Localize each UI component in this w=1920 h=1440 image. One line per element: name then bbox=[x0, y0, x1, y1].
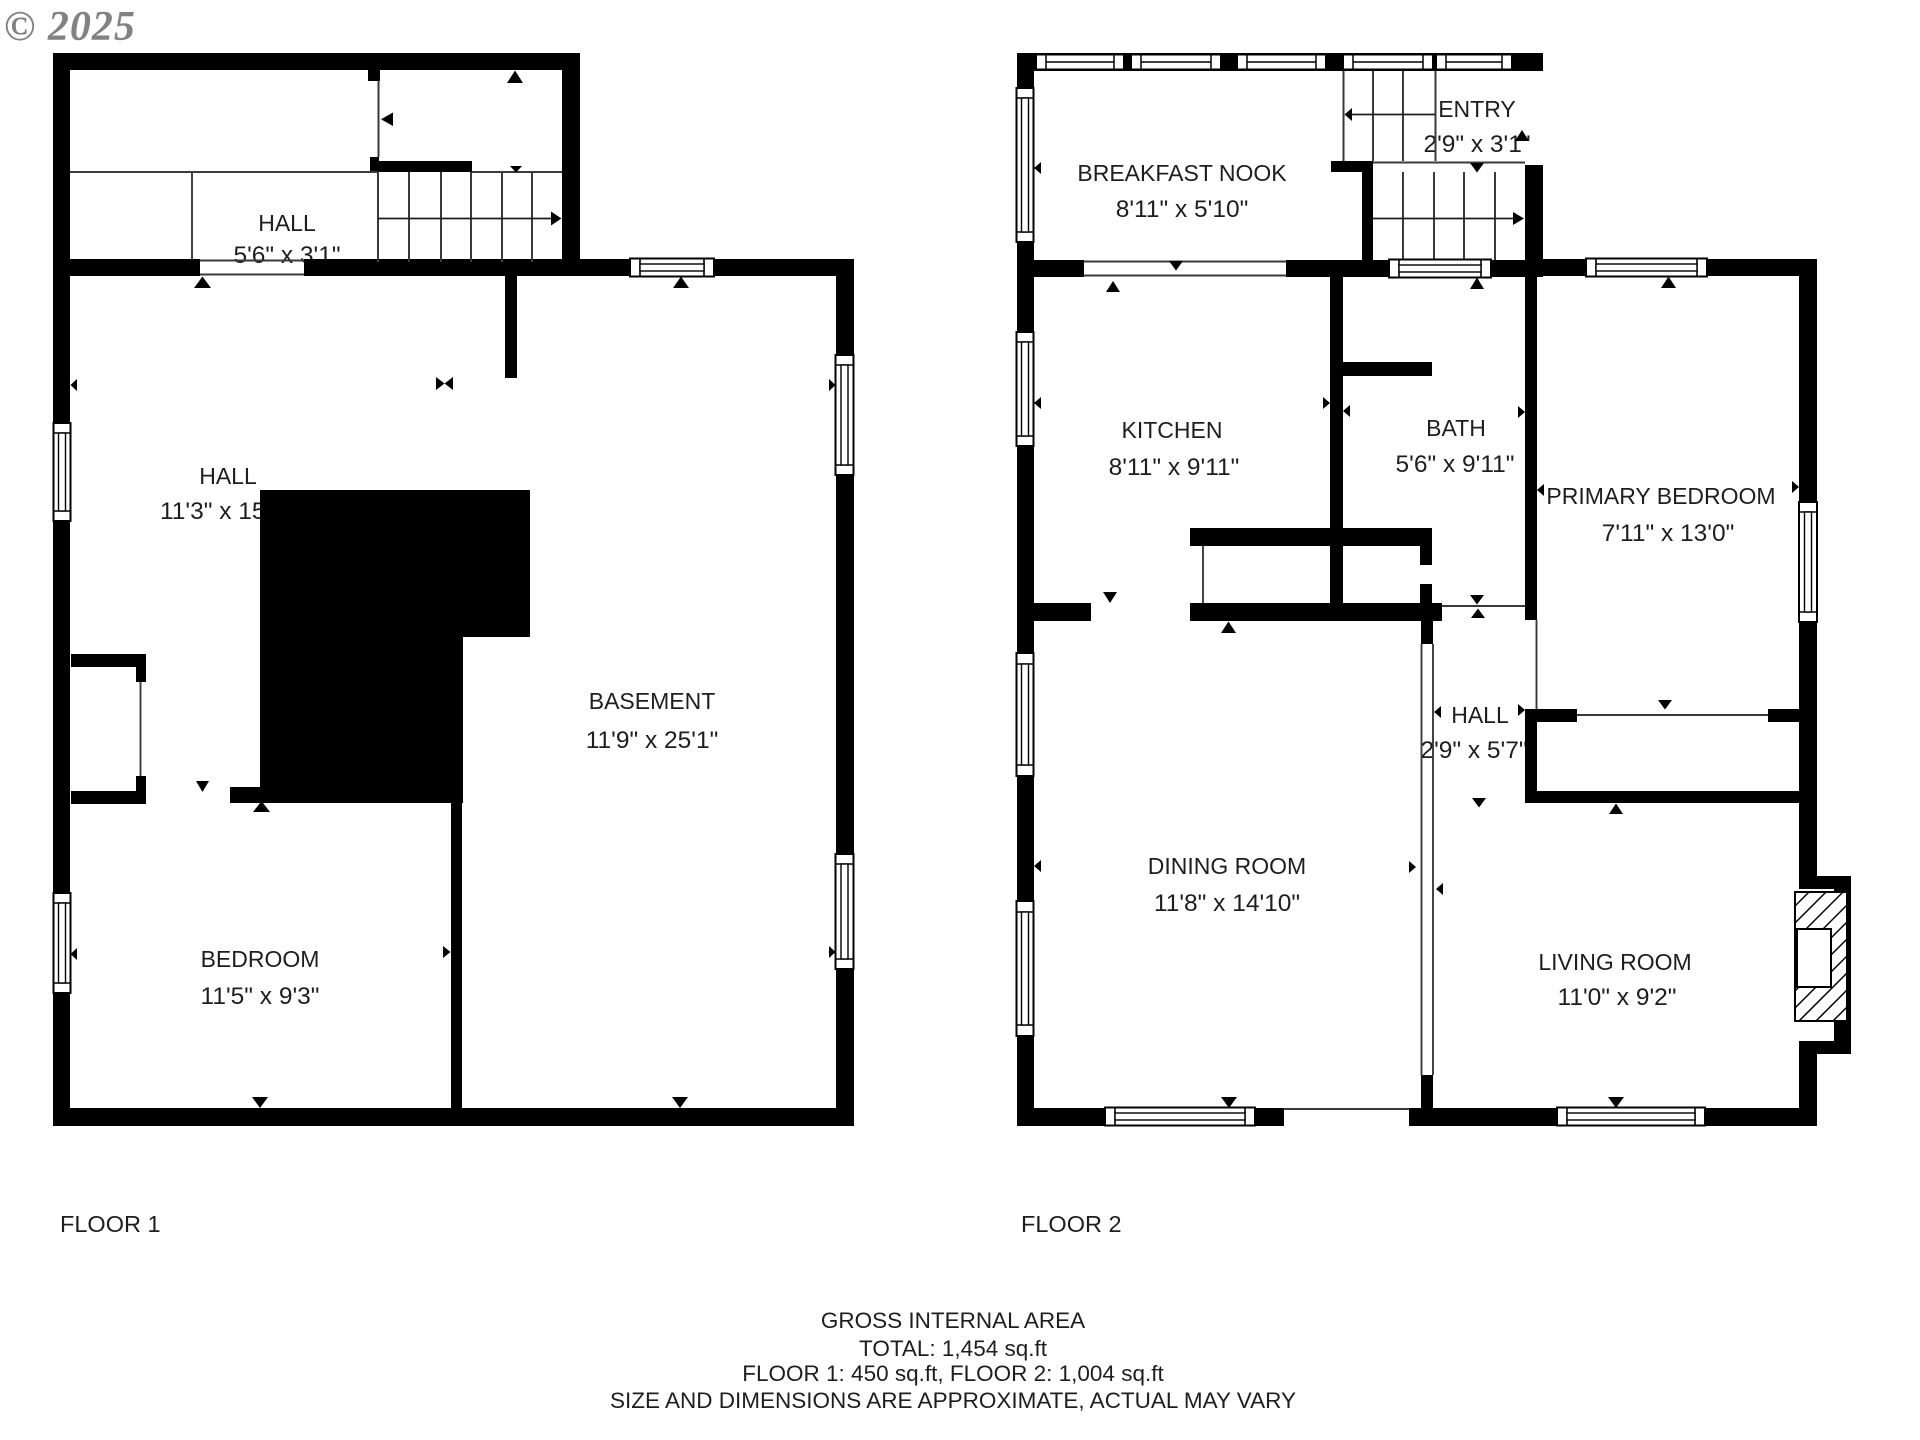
svg-text:7'11" x 13'0": 7'11" x 13'0" bbox=[1602, 520, 1735, 547]
svg-text:PRIMARY BEDROOM: PRIMARY BEDROOM bbox=[1546, 483, 1775, 509]
svg-text:8'11" x 9'11": 8'11" x 9'11" bbox=[1109, 454, 1240, 481]
svg-text:SIZE AND DIMENSIONS ARE APPROX: SIZE AND DIMENSIONS ARE APPROXIMATE, ACT… bbox=[610, 1388, 1296, 1413]
svg-text:BATH: BATH bbox=[1426, 415, 1486, 441]
svg-text:© 2025: © 2025 bbox=[4, 4, 136, 50]
svg-text:FLOOR 2: FLOOR 2 bbox=[1021, 1211, 1122, 1237]
svg-text:DINING ROOM: DINING ROOM bbox=[1148, 853, 1306, 879]
svg-text:11'0" x 9'2": 11'0" x 9'2" bbox=[1558, 984, 1677, 1011]
svg-text:HALL: HALL bbox=[258, 210, 316, 236]
svg-text:GROSS INTERNAL AREA: GROSS INTERNAL AREA bbox=[821, 1308, 1085, 1333]
svg-text:BEDROOM: BEDROOM bbox=[201, 946, 320, 972]
svg-text:8'11" x 5'10": 8'11" x 5'10" bbox=[1116, 196, 1249, 223]
svg-text:FLOOR 1: FLOOR 1 bbox=[60, 1211, 161, 1237]
svg-text:ENTRY: ENTRY bbox=[1438, 96, 1516, 122]
svg-text:11'9" x 25'1": 11'9" x 25'1" bbox=[586, 727, 719, 754]
svg-text:TOTAL: 1,454 sq.ft: TOTAL: 1,454 sq.ft bbox=[859, 1336, 1048, 1361]
svg-text:BREAKFAST NOOK: BREAKFAST NOOK bbox=[1077, 160, 1287, 186]
svg-text:5'6" x 9'11": 5'6" x 9'11" bbox=[1396, 451, 1515, 478]
svg-text:KITCHEN: KITCHEN bbox=[1122, 417, 1223, 443]
svg-text:BASEMENT: BASEMENT bbox=[589, 688, 716, 714]
svg-text:FLOOR 1: 450 sq.ft, FLOOR 2: 1: FLOOR 1: 450 sq.ft, FLOOR 2: 1,004 sq.ft bbox=[742, 1361, 1164, 1386]
svg-text:11'8" x 14'10": 11'8" x 14'10" bbox=[1154, 890, 1300, 917]
svg-text:LIVING ROOM: LIVING ROOM bbox=[1538, 949, 1691, 975]
svg-text:HALL: HALL bbox=[1451, 702, 1509, 728]
svg-text:11'5" x 9'3": 11'5" x 9'3" bbox=[201, 983, 320, 1010]
svg-text:HALL: HALL bbox=[199, 463, 257, 489]
svg-text:2'9" x 3'1": 2'9" x 3'1" bbox=[1423, 131, 1530, 158]
svg-text:2'9" x 5'7": 2'9" x 5'7" bbox=[1420, 737, 1527, 764]
